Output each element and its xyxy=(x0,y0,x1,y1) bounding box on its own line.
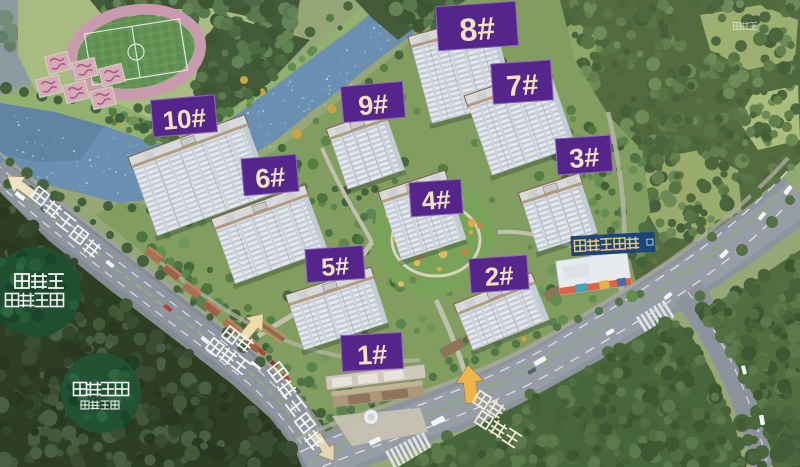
svg-text:3#: 3# xyxy=(568,142,600,174)
svg-text:6#: 6# xyxy=(254,162,287,195)
svg-text:8#: 8# xyxy=(458,10,496,48)
svg-text:7#: 7# xyxy=(505,69,539,103)
svg-text:1#: 1# xyxy=(356,339,388,371)
svg-text:2#: 2# xyxy=(484,260,515,292)
svg-text:4#: 4# xyxy=(421,184,452,216)
svg-text:9#: 9# xyxy=(357,89,390,122)
svg-text:10#: 10# xyxy=(161,102,207,136)
svg-text:5#: 5# xyxy=(320,252,350,282)
